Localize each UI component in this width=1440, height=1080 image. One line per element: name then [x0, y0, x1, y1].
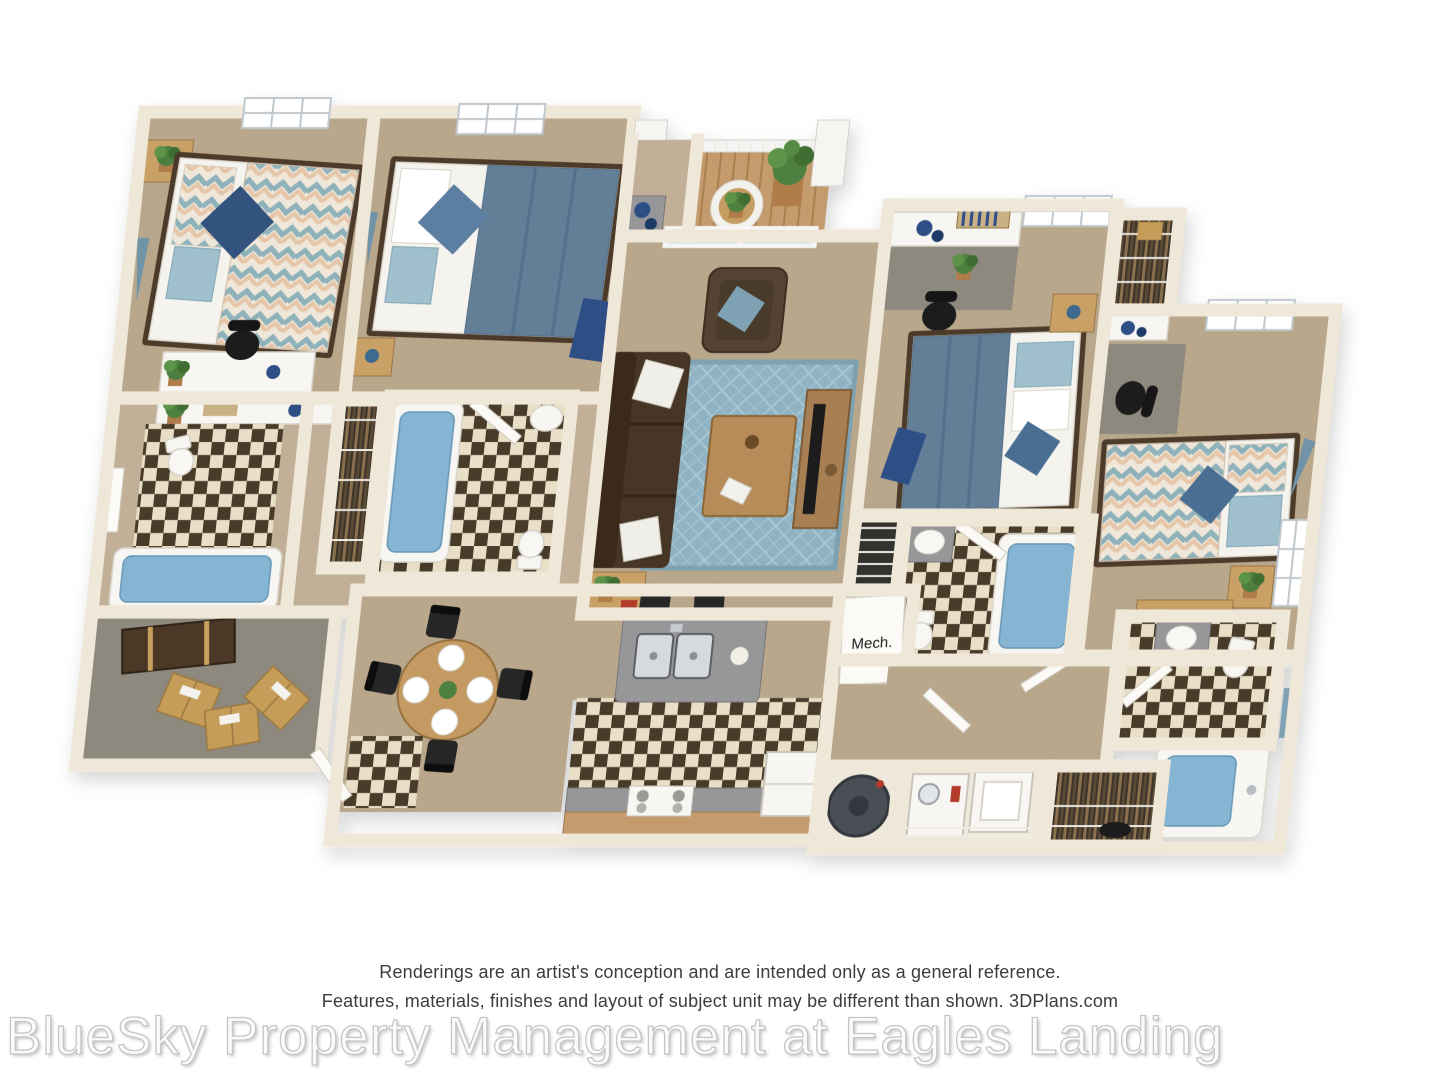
- dining-chair: [496, 667, 534, 700]
- kitchen: [558, 583, 849, 838]
- disclaimer-line-1: Renderings are an artist's conception an…: [0, 962, 1440, 983]
- stove: [627, 786, 694, 816]
- column: [811, 120, 850, 186]
- cardboard-box: [205, 702, 260, 750]
- floor-plan-rendering: Mech.: [0, 0, 1440, 1080]
- entry-tile: [343, 736, 423, 808]
- right-hall-floor: [879, 660, 1118, 760]
- dining-chair: [423, 739, 458, 773]
- plan-body: Mech.: [67, 98, 1358, 848]
- faucet: [670, 624, 683, 632]
- pillow-aqua: [385, 246, 439, 304]
- pillow-aqua: [1015, 341, 1074, 387]
- box: [1137, 222, 1163, 240]
- hvac-closet: [848, 516, 904, 590]
- coffee-table: [702, 416, 797, 516]
- pillow-pattern: [1226, 443, 1288, 493]
- pillow-white: [1011, 389, 1070, 431]
- right-wing: Mech.: [813, 196, 1348, 848]
- kitchen-island: [615, 616, 768, 702]
- wardrobe-closet: [1043, 766, 1163, 846]
- floor-plan-page: Mech.: [0, 0, 1440, 1080]
- water-heater-closet: [817, 766, 899, 846]
- detergent: [950, 786, 961, 802]
- bed-slate-2: [895, 325, 1087, 517]
- washer: [907, 774, 970, 836]
- kitchen-corridor: [831, 684, 887, 760]
- window: [242, 98, 331, 128]
- laundry-closet: [897, 766, 1045, 846]
- dryer: [969, 772, 1033, 832]
- bathroom-2: [372, 396, 573, 578]
- books: [203, 404, 238, 416]
- pillow-white: [620, 516, 662, 561]
- bathtub: [108, 548, 283, 610]
- watermark-text: BlueSky Property Management at Eagles La…: [6, 1006, 1224, 1067]
- bathroom-3: [891, 520, 1092, 660]
- pillow-aqua: [1227, 495, 1283, 547]
- armchair: [701, 268, 788, 352]
- pillow-aqua: [166, 246, 221, 301]
- window: [456, 104, 545, 134]
- mech-label: Mech.: [851, 634, 893, 653]
- bed-chevron-2: [1093, 433, 1301, 568]
